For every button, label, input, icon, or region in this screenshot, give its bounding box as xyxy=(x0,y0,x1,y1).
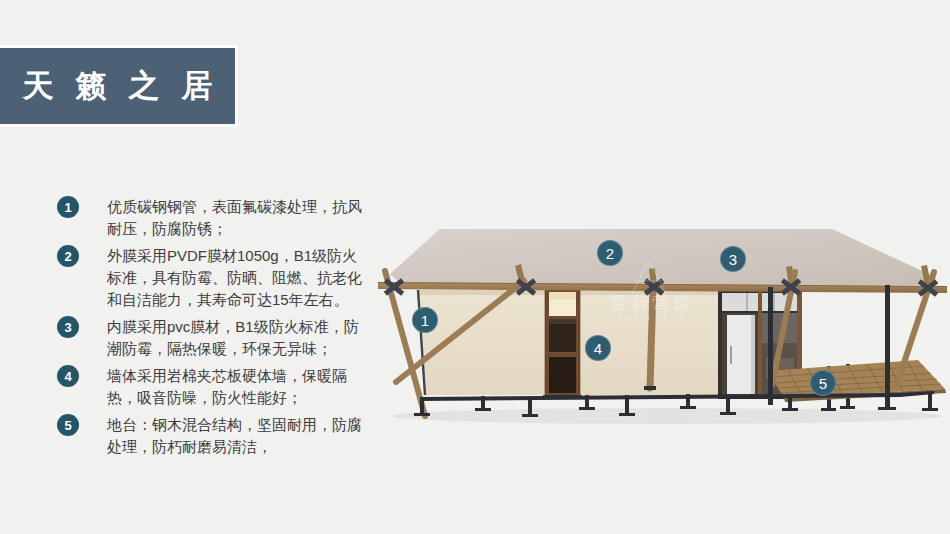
watermark-cn: 雪莉营房 xyxy=(610,293,694,312)
feature-text: 内膜采用pvc膜材，B1级防火标准，防潮防霉，隔热保暖，环保无异味； xyxy=(107,316,369,360)
watermark-en: XUELI TENT xyxy=(618,313,686,322)
diagram-marker-4: 4 xyxy=(585,335,611,361)
feature-text: 外膜采用PVDF膜材1050g，B1级防火标准，具有防霉、防晒、阻燃、抗老化和自… xyxy=(107,245,369,311)
feature-item-2: 2 外膜采用PVDF膜材1050g，B1级防火标准，具有防霉、防晒、阻燃、抗老化… xyxy=(57,245,369,311)
feature-item-3: 3 内膜采用pvc膜材，B1级防火标准，防潮防霉，隔热保暖，环保无异味； xyxy=(57,316,369,360)
left-door xyxy=(543,287,582,398)
feature-number-badge: 4 xyxy=(57,365,79,387)
page-title: 天籁之居 xyxy=(1,65,235,107)
feature-text: 墙体采用岩棉夹芯板硬体墙，保暖隔热，吸音防噪，防火性能好； xyxy=(107,365,369,409)
diagram-marker-2: 2 xyxy=(597,240,623,266)
feature-number-badge: 5 xyxy=(57,414,79,436)
feature-item-4: 4 墙体采用岩棉夹芯板硬体墙，保暖隔热，吸音防噪，防火性能好； xyxy=(57,365,369,409)
ground-shadow xyxy=(392,408,942,424)
feature-text: 地台：钢木混合结构，坚固耐用，防腐处理，防朽耐磨易清洁， xyxy=(107,414,369,458)
diagram-marker-3: 3 xyxy=(720,246,746,272)
feature-item-1: 1 优质碳钢钢管，表面氟碳漆处理，抗风耐压，防腐防锈； xyxy=(57,196,369,240)
tent-illustration: 雪莉营房 XUELI TENT xyxy=(372,208,950,434)
feature-number-badge: 2 xyxy=(57,245,79,267)
pole-foot xyxy=(644,386,656,390)
diagram-marker-5: 5 xyxy=(810,370,836,396)
feature-text: 优质碳钢钢管，表面氟碳漆处理，抗风耐压，防腐防锈； xyxy=(107,196,369,240)
feature-number-badge: 3 xyxy=(57,316,79,338)
feature-item-5: 5 地台：钢木混合结构，坚固耐用，防腐处理，防朽耐磨易清洁， xyxy=(57,414,369,458)
feature-list: 1 优质碳钢钢管，表面氟碳漆处理，抗风耐压，防腐防锈； 2 外膜采用PVDF膜材… xyxy=(57,196,369,463)
canopy-roof xyxy=(390,229,933,285)
title-block: 天籁之居 xyxy=(0,45,238,127)
tent-diagram: 雪莉营房 XUELI TENT 1 2 3 4 5 xyxy=(372,208,950,434)
diagram-marker-1: 1 xyxy=(412,307,438,333)
feature-number-badge: 1 xyxy=(57,196,79,218)
slide: { "slide": { "background_color": "#f1f1e… xyxy=(0,0,950,534)
